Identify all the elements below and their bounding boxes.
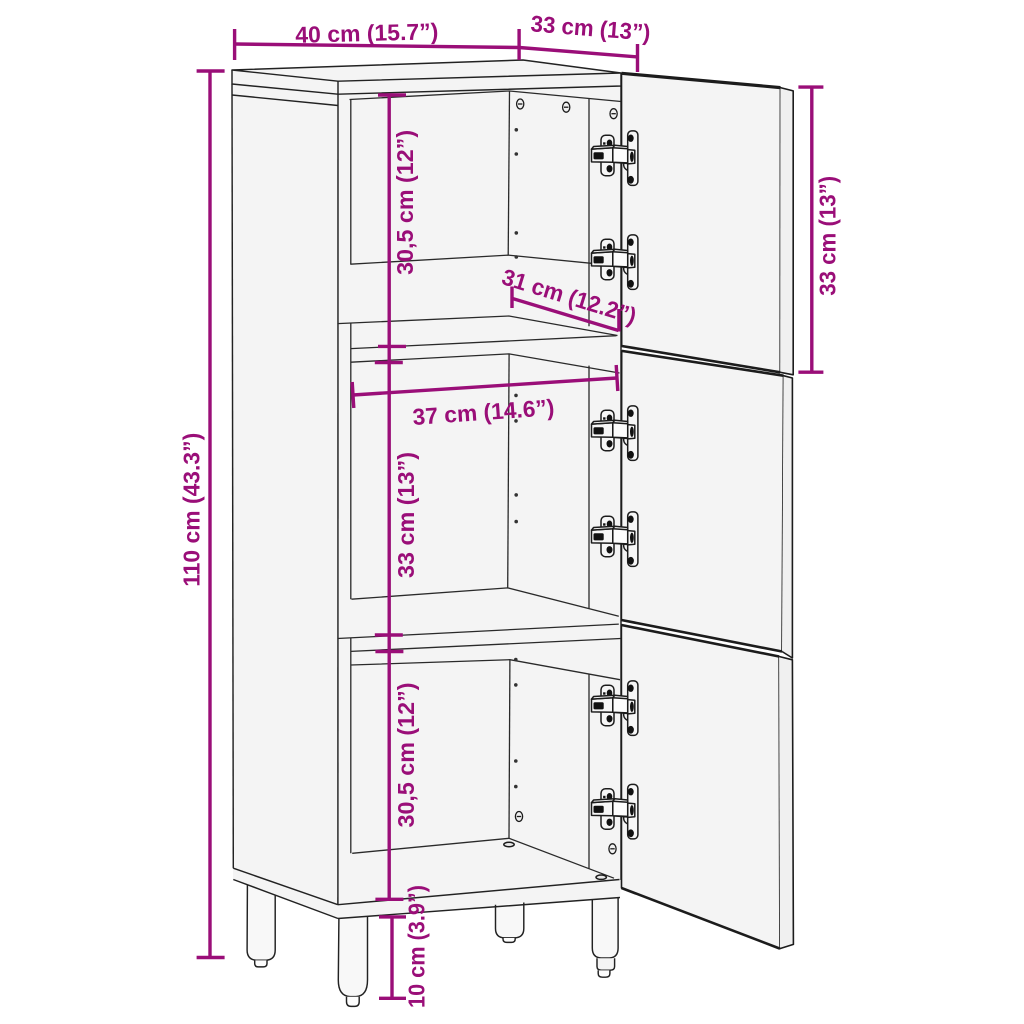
svg-text:30,5 cm (12”): 30,5 cm (12”): [392, 130, 418, 275]
svg-text:10 cm (3.9”): 10 cm (3.9”): [404, 885, 430, 1008]
svg-text:33 cm (13”): 33 cm (13”): [815, 176, 841, 296]
svg-text:40 cm (15.7”): 40 cm (15.7”): [295, 18, 439, 48]
svg-text:110 cm (43.3”): 110 cm (43.3”): [178, 433, 204, 587]
svg-text:30,5 cm (12”): 30,5 cm (12”): [393, 683, 419, 828]
svg-text:33 cm (13”): 33 cm (13”): [393, 452, 419, 578]
